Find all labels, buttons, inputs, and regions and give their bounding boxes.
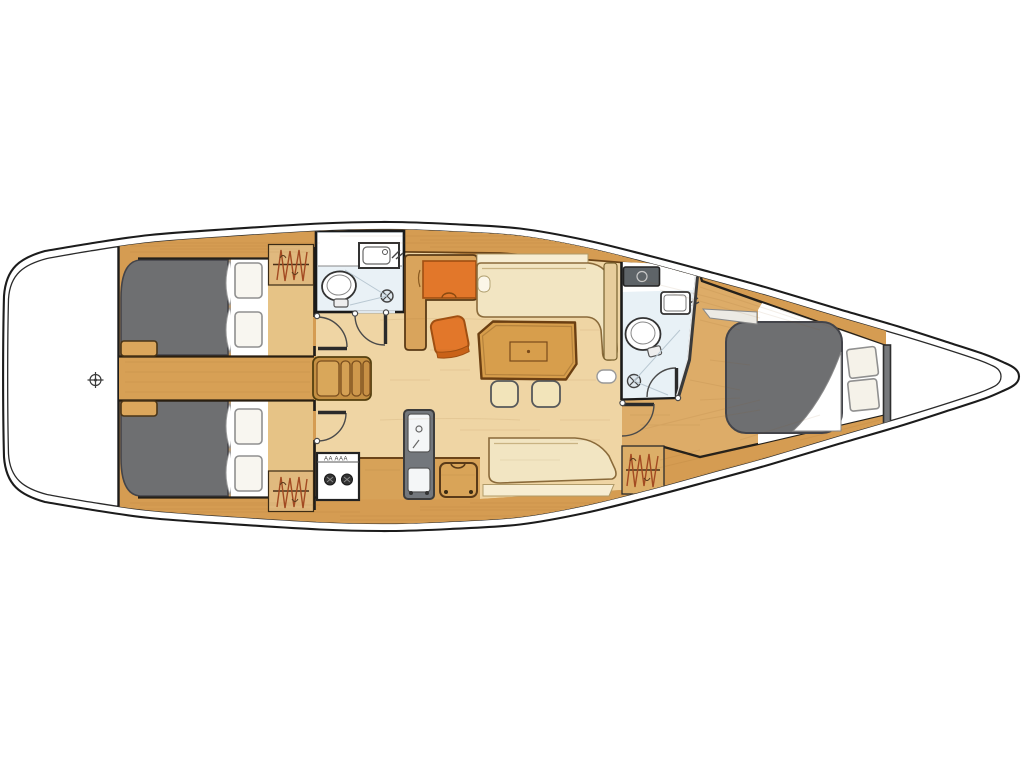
svg-text:AA AAA: AA AAA [324,457,348,463]
